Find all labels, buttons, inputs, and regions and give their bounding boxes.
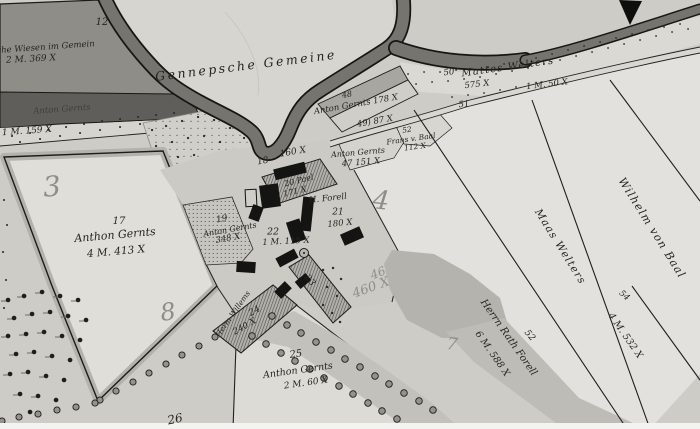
pencil-mark-8: 8 [159, 299, 177, 325]
parcel-50-number: 50 [443, 68, 455, 78]
pencil-mark-7: 7 [445, 336, 458, 354]
pencil-mark-4: 4 [371, 187, 390, 215]
parcel-25-number: 25 [289, 349, 303, 361]
parcel-21-number: 21 [332, 209, 343, 218]
map-drawing [0, 0, 700, 429]
parcel-22-area: 1 M. 115 X [262, 237, 310, 248]
parcel-12-number: 12 [96, 18, 109, 28]
parcel-51-number: 51 [458, 100, 470, 110]
parcel-26-number: 26 [166, 412, 183, 427]
pencil-mark-3: 3 [42, 172, 62, 201]
scan-margin [0, 423, 700, 429]
parcel-22-number: 22 [267, 227, 279, 237]
historical-cadastral-map: 12 sche Wiesen im Gemein 2 M. 369 X Genn… [0, 0, 700, 429]
parcel-52-number: 52 [402, 126, 412, 135]
parcel-17-number: 17 [113, 217, 126, 227]
